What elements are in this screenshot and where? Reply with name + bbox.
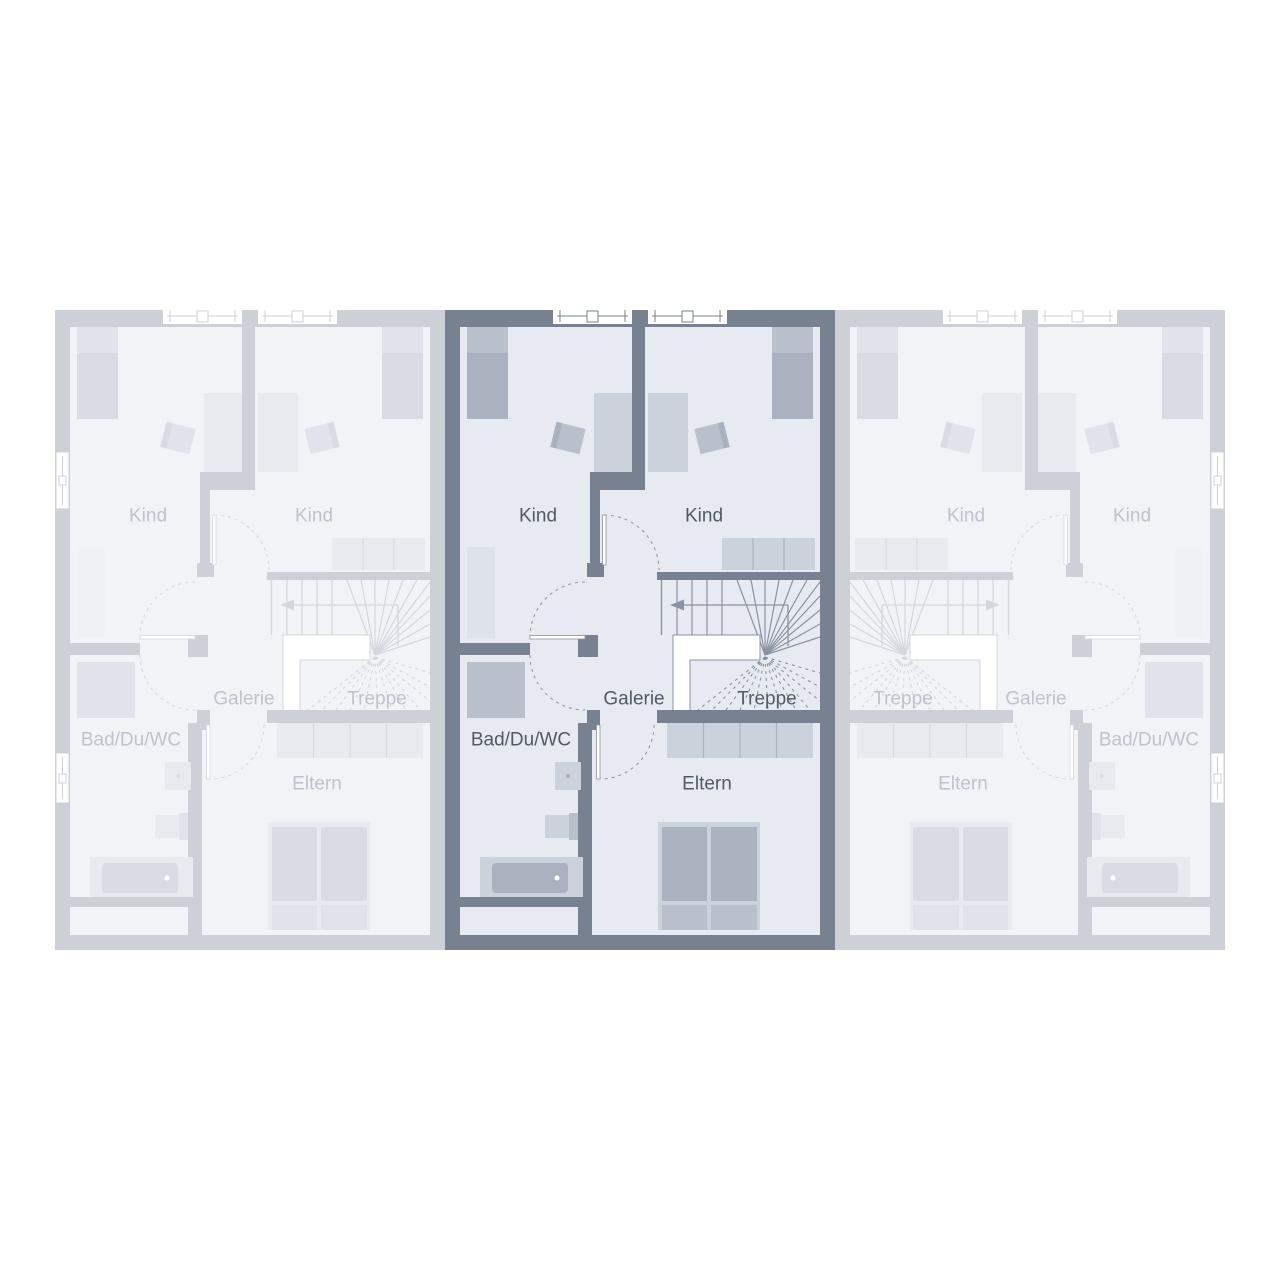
floor-plan-svg (0, 0, 1280, 1280)
unit-middle[interactable] (445, 301, 835, 950)
floor-plan-canvas: Kind Kind Galerie Treppe Bad/Du/WC Elter… (0, 0, 1280, 1280)
unit-right[interactable] (835, 301, 1225, 950)
unit-right-plan (835, 301, 1225, 950)
unit-left[interactable] (55, 301, 445, 950)
unit-middle-plan (445, 301, 835, 950)
unit-left-plan (55, 301, 445, 950)
